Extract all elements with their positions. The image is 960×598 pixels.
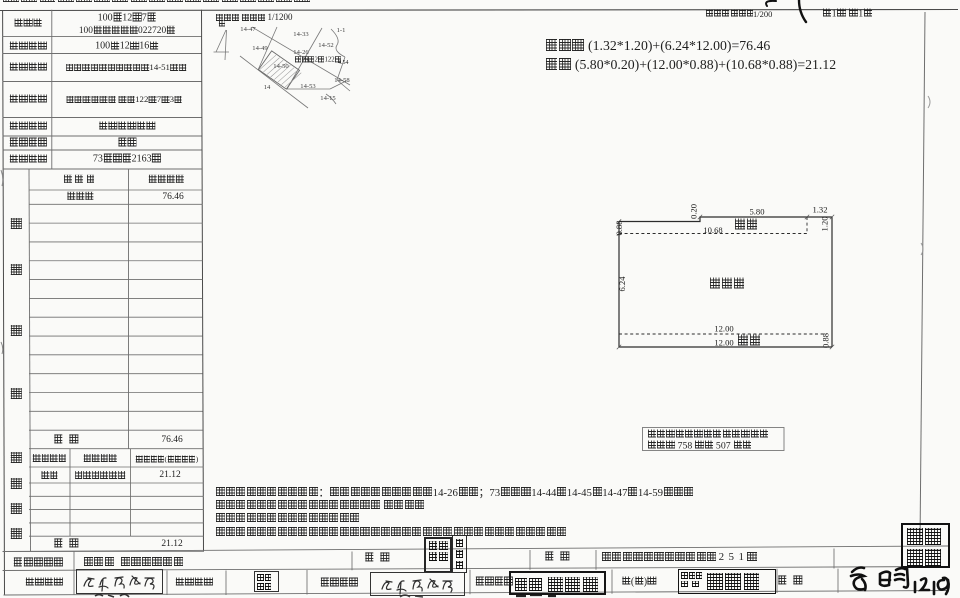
svg-text:0.88: 0.88 bbox=[614, 220, 624, 235]
svg-text:1.20: 1.20 bbox=[820, 216, 830, 231]
svg-text:0.20: 0.20 bbox=[689, 204, 699, 219]
svg-text:1-1: 1-1 bbox=[337, 27, 346, 34]
svg-text:14-49: 14-49 bbox=[252, 45, 268, 52]
svg-text:10.68: 10.68 bbox=[703, 225, 722, 235]
svg-text:5.80: 5.80 bbox=[749, 207, 764, 217]
svg-text:14-53: 14-53 bbox=[300, 83, 316, 90]
svg-text:14-58: 14-58 bbox=[334, 77, 350, 84]
svg-text:14-15: 14-15 bbox=[320, 95, 336, 102]
svg-text:14: 14 bbox=[264, 84, 271, 91]
svg-text:12.00: 12.00 bbox=[714, 324, 733, 334]
svg-text:0.88: 0.88 bbox=[821, 333, 831, 348]
svg-text:1.32: 1.32 bbox=[812, 205, 827, 215]
svg-text:6.24: 6.24 bbox=[617, 276, 627, 292]
svg-text:14-50: 14-50 bbox=[273, 63, 289, 70]
svg-text:14-33: 14-33 bbox=[293, 31, 309, 38]
svg-text:14-47: 14-47 bbox=[240, 26, 256, 33]
svg-text:14-26: 14-26 bbox=[293, 49, 309, 56]
svg-text:12.00: 12.00 bbox=[714, 338, 733, 348]
svg-text:14-52: 14-52 bbox=[318, 42, 333, 49]
